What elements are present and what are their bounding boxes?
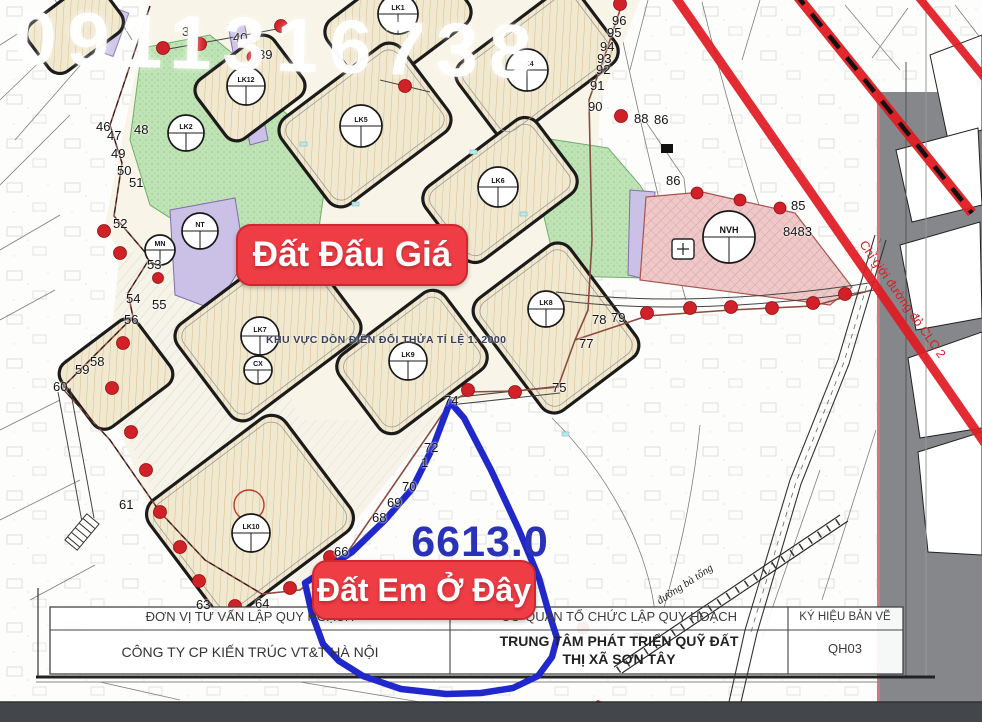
svg-text:NVH: NVH <box>719 225 738 235</box>
boundary-point-number: 78 <box>592 312 606 327</box>
lot-symbol: LK6 <box>478 167 518 207</box>
svg-text:LK7: LK7 <box>253 327 266 334</box>
svg-text:NT: NT <box>195 222 205 229</box>
boundary-point-number: 53 <box>147 257 161 272</box>
boundary-point-number: 85 <box>791 198 805 213</box>
lot-symbol: LK12 <box>227 67 265 105</box>
boundary-point-number: 74 <box>444 393 458 408</box>
boundary-point-number: 90 <box>588 99 602 114</box>
lot-symbol: LK8 <box>528 291 564 327</box>
lot-symbol: CX <box>244 356 272 384</box>
boundary-point-number: 51 <box>129 175 143 190</box>
boundary-point-number: 77 <box>579 336 593 351</box>
zone-note: KHU VỰC DỒN ĐIỀN ĐỔI THỬA TỈ LỆ 1: 2000 <box>266 334 526 346</box>
boundary-point-number: 86 <box>654 112 668 127</box>
boundary-point-number: 69 <box>387 495 401 510</box>
lot-symbol: LK9 <box>389 342 427 380</box>
svg-text:LK9: LK9 <box>401 352 414 359</box>
svg-text:LK10: LK10 <box>242 524 259 531</box>
boundary-point-number: 3 <box>182 24 189 39</box>
title-block-col1-value: CÔNG TY CP KIẾN TRÚC VT&T HÀ NỘI <box>55 644 445 660</box>
boundary-point-number: 92 <box>596 62 610 77</box>
drawing-code: QH03 <box>790 641 900 656</box>
culture-icon <box>672 239 694 259</box>
boundary-point-number: 52 <box>113 216 127 231</box>
lot-symbol: LK5 <box>340 105 382 147</box>
boundary-point-number: 1 <box>421 455 428 470</box>
boundary-point-number: 61 <box>119 497 133 512</box>
boundary-point-number: 55 <box>152 297 166 312</box>
boundary-point-number: 70 <box>402 479 416 494</box>
boundary-point-number: 88 <box>634 111 648 126</box>
svg-text:LK2: LK2 <box>179 124 192 131</box>
svg-text:LK6: LK6 <box>491 178 504 185</box>
bottom-bar <box>0 702 982 722</box>
boundary-point-number: 56 <box>124 312 138 327</box>
lot-symbol: LK4 <box>506 49 548 91</box>
boundary-point-number: 79 <box>611 310 625 325</box>
boundary-point-number: 95 <box>607 25 621 40</box>
planning-map-screenshot: LK1LK4LK12LK2LK5LK6NTMNLK7CXLK9LK8LK10NV… <box>0 0 982 722</box>
svg-text:LK1: LK1 <box>391 5 404 12</box>
my-land-here-badge[interactable]: Đất Em Ở Đây <box>312 560 536 620</box>
boundary-point-number: 40 <box>233 30 247 45</box>
svg-text:CX: CX <box>253 361 263 368</box>
svg-text:LK4: LK4 <box>520 61 533 68</box>
title-block-col3-header: KÝ HIỆU BẢN VẼ <box>790 611 900 623</box>
lot-symbol: LK2 <box>168 115 204 151</box>
boundary-point-number: 54 <box>126 291 140 306</box>
boundary-point-number: 47 <box>107 128 121 143</box>
title-block-col2-value-1: TRUNG TÂM PHÁT TRIỂN QUỸ ĐẤT <box>455 633 783 649</box>
boundary-point-number: 39 <box>258 47 272 62</box>
lot-symbol: NT <box>182 213 218 249</box>
boundary-point-number: 86 <box>666 173 680 188</box>
boundary-point-number: 49 <box>111 146 125 161</box>
svg-text:LK12: LK12 <box>237 77 254 84</box>
boundary-point-number: 58 <box>90 354 104 369</box>
boundary-point-number: 48 <box>134 122 148 137</box>
svg-text:MN: MN <box>155 241 166 248</box>
boundary-point-number: 8483 <box>783 224 812 239</box>
lot-symbol: LK10 <box>232 514 270 552</box>
svg-text:LK8: LK8 <box>539 300 552 307</box>
lot-symbol: LK1 <box>378 0 418 34</box>
boundary-point-number: 66 <box>334 544 348 559</box>
boundary-point-number: 91 <box>590 78 604 93</box>
auction-land-badge[interactable]: Đất Đấu Giá <box>236 224 468 286</box>
lot-symbol: NVH <box>703 211 755 263</box>
boundary-point-number: 75 <box>552 380 566 395</box>
black-marker <box>661 144 673 153</box>
boundary-point-number: 60 <box>53 379 67 394</box>
title-block-col2-value-2: THỊ XÃ SƠN TÂY <box>455 651 783 667</box>
boundary-point-number: 59 <box>75 362 89 377</box>
boundary-point-number: 72 <box>424 440 438 455</box>
svg-text:LK5: LK5 <box>354 117 367 124</box>
